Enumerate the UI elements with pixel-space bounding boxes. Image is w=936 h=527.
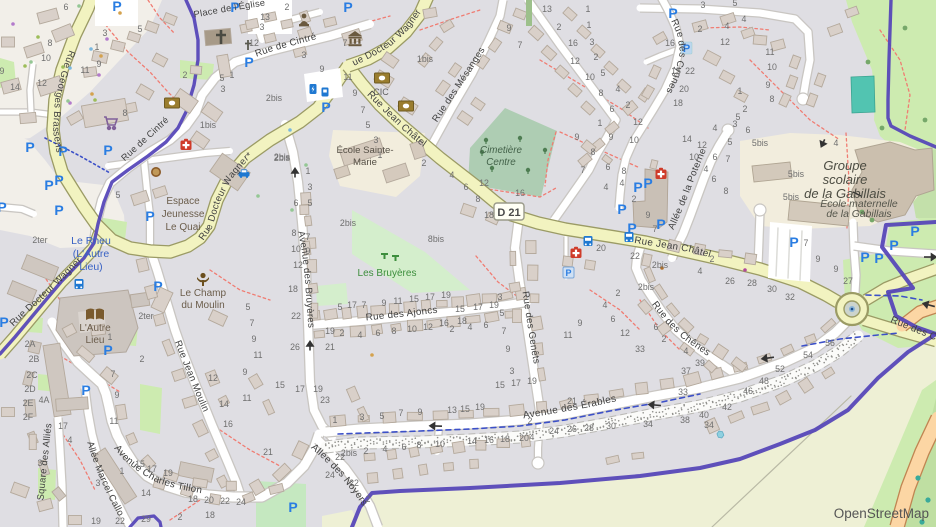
svg-text:8: 8 <box>48 38 53 48</box>
svg-text:6: 6 <box>464 182 469 192</box>
svg-text:P: P <box>633 179 642 195</box>
svg-text:37: 37 <box>681 366 691 376</box>
svg-text:15: 15 <box>671 66 681 76</box>
svg-text:6: 6 <box>746 125 751 135</box>
svg-text:39: 39 <box>695 358 705 368</box>
svg-text:3: 3 <box>510 366 515 376</box>
svg-text:P: P <box>103 342 112 358</box>
svg-text:3: 3 <box>308 182 313 192</box>
svg-text:4: 4 <box>603 300 608 310</box>
svg-text:du Moulin: du Moulin <box>181 300 224 311</box>
svg-text:9: 9 <box>382 298 387 308</box>
svg-text:7: 7 <box>111 369 116 379</box>
svg-text:11: 11 <box>563 330 572 340</box>
svg-text:P: P <box>565 268 571 278</box>
svg-text:3: 3 <box>302 50 307 60</box>
svg-text:4: 4 <box>684 346 689 356</box>
svg-text:17: 17 <box>511 378 521 388</box>
svg-text:P: P <box>0 314 9 330</box>
svg-text:8bis: 8bis <box>428 234 445 244</box>
svg-text:7: 7 <box>399 408 404 418</box>
svg-text:1bis: 1bis <box>417 54 434 64</box>
svg-text:26: 26 <box>725 276 735 286</box>
svg-text:15: 15 <box>455 304 465 314</box>
svg-text:12: 12 <box>479 178 489 188</box>
svg-text:3: 3 <box>701 0 706 10</box>
svg-text:14: 14 <box>10 82 20 92</box>
svg-text:2E: 2E <box>23 398 34 408</box>
svg-text:20: 20 <box>596 243 606 253</box>
svg-text:2: 2 <box>183 70 188 80</box>
svg-text:2bis: 2bis <box>340 218 357 228</box>
svg-text:5: 5 <box>733 0 738 8</box>
svg-text:Le Rheu: Le Rheu <box>71 235 111 247</box>
svg-text:17: 17 <box>473 302 483 312</box>
svg-text:29: 29 <box>141 514 151 524</box>
svg-text:4: 4 <box>704 164 709 174</box>
svg-text:28: 28 <box>584 423 594 433</box>
svg-text:20: 20 <box>679 84 689 94</box>
svg-text:1: 1 <box>738 86 743 96</box>
svg-text:10: 10 <box>41 53 51 63</box>
svg-text:7: 7 <box>726 154 731 164</box>
svg-text:6: 6 <box>484 320 489 330</box>
svg-text:18: 18 <box>188 494 198 504</box>
svg-text:12: 12 <box>570 56 580 66</box>
svg-text:9: 9 <box>243 367 248 377</box>
svg-text:3: 3 <box>103 28 108 38</box>
svg-text:12: 12 <box>293 260 303 270</box>
svg-text:22: 22 <box>291 311 301 321</box>
svg-text:2: 2 <box>528 416 533 426</box>
svg-text:10: 10 <box>629 135 639 145</box>
svg-text:19: 19 <box>91 516 101 526</box>
svg-text:26: 26 <box>290 342 300 352</box>
svg-text:5: 5 <box>500 308 505 318</box>
svg-text:22: 22 <box>685 66 695 76</box>
svg-text:de la Gabillais: de la Gabillais <box>826 209 891 220</box>
svg-text:5: 5 <box>338 302 343 312</box>
svg-text:11: 11 <box>253 350 262 360</box>
svg-text:17: 17 <box>347 300 357 310</box>
svg-text:26: 26 <box>567 424 577 434</box>
svg-text:5: 5 <box>366 120 371 130</box>
svg-text:14: 14 <box>467 436 477 446</box>
svg-text:P: P <box>288 499 297 515</box>
svg-text:3: 3 <box>260 22 265 32</box>
svg-text:12: 12 <box>633 117 643 127</box>
svg-text:16: 16 <box>484 435 494 445</box>
svg-text:7: 7 <box>518 40 523 50</box>
svg-text:8: 8 <box>599 88 604 98</box>
svg-text:5: 5 <box>736 112 741 122</box>
svg-text:Espace: Espace <box>166 196 200 207</box>
svg-text:21: 21 <box>325 342 335 352</box>
svg-text:12: 12 <box>620 328 630 338</box>
svg-text:10: 10 <box>585 72 595 82</box>
svg-text:40: 40 <box>699 410 709 420</box>
svg-text:13: 13 <box>447 405 457 415</box>
svg-text:21: 21 <box>567 396 577 406</box>
svg-text:P: P <box>44 177 53 193</box>
svg-text:2: 2 <box>285 2 290 12</box>
svg-text:28: 28 <box>747 278 757 288</box>
svg-text:P: P <box>244 54 253 70</box>
svg-text:15: 15 <box>409 294 419 304</box>
svg-text:4: 4 <box>834 138 839 148</box>
svg-text:2: 2 <box>594 52 599 62</box>
svg-text:19: 19 <box>527 376 537 386</box>
svg-text:P: P <box>343 0 352 15</box>
svg-text:10: 10 <box>767 62 777 72</box>
svg-text:16: 16 <box>439 318 449 328</box>
svg-text:4: 4 <box>468 322 473 332</box>
svg-text:Centre: Centre <box>486 157 516 168</box>
svg-text:12: 12 <box>37 78 47 88</box>
svg-text:2B: 2B <box>29 354 40 364</box>
svg-text:10: 10 <box>689 152 699 162</box>
svg-text:7: 7 <box>804 238 809 248</box>
svg-text:8: 8 <box>476 194 481 204</box>
svg-text:2: 2 <box>450 324 455 334</box>
svg-text:5: 5 <box>138 24 143 34</box>
svg-text:5bis: 5bis <box>752 138 769 148</box>
svg-text:P: P <box>910 223 919 239</box>
svg-text:6: 6 <box>610 104 615 114</box>
svg-text:14: 14 <box>141 488 151 498</box>
svg-text:9: 9 <box>575 132 580 142</box>
svg-text:P: P <box>860 249 869 265</box>
svg-text:17: 17 <box>295 384 305 394</box>
svg-text:6: 6 <box>64 2 69 12</box>
svg-text:2: 2 <box>364 446 369 456</box>
svg-text:7: 7 <box>306 232 311 242</box>
svg-text:3: 3 <box>374 135 379 145</box>
svg-text:6: 6 <box>376 328 381 338</box>
svg-text:OpenStreetMap: OpenStreetMap <box>834 506 929 521</box>
svg-text:1: 1 <box>306 166 311 176</box>
svg-text:1: 1 <box>586 4 591 14</box>
svg-text:1: 1 <box>230 70 235 80</box>
svg-text:4: 4 <box>698 266 703 276</box>
svg-text:22: 22 <box>349 478 359 488</box>
svg-text:2D: 2D <box>24 384 35 394</box>
svg-text:6: 6 <box>712 174 717 184</box>
svg-text:32: 32 <box>785 292 795 302</box>
svg-text:P: P <box>25 139 34 155</box>
svg-text:4: 4 <box>383 444 388 454</box>
svg-text:4: 4 <box>620 178 625 188</box>
svg-text:L'Autre: L'Autre <box>79 323 111 334</box>
svg-text:4: 4 <box>358 330 363 340</box>
svg-text:9: 9 <box>609 132 614 142</box>
svg-text:1: 1 <box>108 332 113 342</box>
svg-text:P: P <box>889 237 898 253</box>
svg-text:2bis: 2bis <box>274 153 291 163</box>
svg-text:10: 10 <box>407 324 417 334</box>
svg-text:2: 2 <box>366 494 371 504</box>
svg-text:4: 4 <box>68 435 73 445</box>
svg-text:P: P <box>54 172 63 188</box>
svg-text:20: 20 <box>204 495 214 505</box>
svg-text:56: 56 <box>825 338 835 348</box>
svg-text:48: 48 <box>759 376 769 386</box>
svg-text:4: 4 <box>713 123 718 133</box>
svg-text:6: 6 <box>654 322 659 332</box>
svg-text:2: 2 <box>710 254 715 264</box>
svg-text:6: 6 <box>713 152 718 162</box>
svg-text:2bis: 2bis <box>266 93 283 103</box>
svg-text:12: 12 <box>720 37 730 47</box>
svg-text:12: 12 <box>208 373 218 383</box>
svg-text:11: 11 <box>242 393 251 403</box>
svg-text:7: 7 <box>250 318 255 328</box>
svg-text:2F: 2F <box>23 412 34 422</box>
svg-text:1: 1 <box>333 415 338 425</box>
svg-text:21: 21 <box>263 447 273 457</box>
svg-text:2: 2 <box>662 334 667 344</box>
svg-text:7: 7 <box>581 165 586 175</box>
svg-text:9: 9 <box>306 246 311 256</box>
svg-text:5bis: 5bis <box>783 192 800 202</box>
svg-text:15: 15 <box>460 404 470 414</box>
svg-text:15: 15 <box>495 380 505 390</box>
svg-text:3: 3 <box>498 292 503 302</box>
svg-text:2bis: 2bis <box>638 282 655 292</box>
svg-text:9: 9 <box>0 66 5 76</box>
svg-text:14: 14 <box>682 134 692 144</box>
svg-text:34: 34 <box>643 419 653 429</box>
svg-text:9: 9 <box>353 88 358 98</box>
svg-text:17: 17 <box>425 292 435 302</box>
svg-text:1: 1 <box>598 118 603 128</box>
svg-text:12: 12 <box>249 38 259 48</box>
svg-text:2C: 2C <box>26 370 38 380</box>
svg-text:4A: 4A <box>39 395 50 405</box>
svg-text:15: 15 <box>275 380 285 390</box>
svg-text:4: 4 <box>450 170 455 180</box>
svg-text:4: 4 <box>742 14 747 24</box>
svg-text:18: 18 <box>500 434 510 444</box>
svg-text:16: 16 <box>665 38 675 48</box>
svg-text:30: 30 <box>767 284 777 294</box>
svg-text:9: 9 <box>834 264 839 274</box>
svg-text:P: P <box>874 250 883 266</box>
svg-text:18: 18 <box>457 316 467 326</box>
svg-text:Cimetière: Cimetière <box>480 145 522 156</box>
svg-text:(L'Autre: (L'Autre <box>73 248 110 260</box>
svg-text:5: 5 <box>601 68 606 78</box>
svg-text:scolaire: scolaire <box>823 172 868 187</box>
svg-text:33: 33 <box>635 344 645 354</box>
svg-text:13: 13 <box>542 4 552 14</box>
svg-text:Marie: Marie <box>353 157 377 168</box>
svg-text:8: 8 <box>770 94 775 104</box>
svg-text:14: 14 <box>219 399 229 409</box>
svg-text:P: P <box>103 142 112 158</box>
svg-text:6: 6 <box>294 198 299 208</box>
svg-text:5: 5 <box>220 73 225 83</box>
svg-text:2: 2 <box>698 24 703 34</box>
svg-text:3: 3 <box>360 412 365 422</box>
svg-text:22: 22 <box>335 452 345 462</box>
svg-text:2bis: 2bis <box>652 260 669 270</box>
svg-text:6: 6 <box>606 162 611 172</box>
svg-text:2A: 2A <box>25 339 36 349</box>
svg-text:46: 46 <box>743 386 753 396</box>
svg-text:10: 10 <box>291 244 301 254</box>
svg-text:8: 8 <box>724 186 729 196</box>
svg-text:12: 12 <box>423 322 433 332</box>
svg-text:22: 22 <box>220 496 230 506</box>
svg-text:19: 19 <box>441 290 451 300</box>
svg-text:Groupe: Groupe <box>823 158 866 173</box>
svg-text:23: 23 <box>320 395 330 405</box>
svg-text:15: 15 <box>135 459 145 469</box>
svg-text:34: 34 <box>704 420 714 430</box>
svg-text:19: 19 <box>163 468 173 478</box>
svg-text:42: 42 <box>722 402 732 412</box>
svg-text:54: 54 <box>803 350 813 360</box>
svg-text:18: 18 <box>205 510 215 520</box>
svg-text:17: 17 <box>147 464 157 474</box>
svg-text:2: 2 <box>422 158 427 168</box>
svg-text:4: 4 <box>616 84 621 94</box>
svg-text:9: 9 <box>320 64 325 74</box>
svg-text:33: 33 <box>678 387 688 397</box>
svg-text:9: 9 <box>418 407 423 417</box>
svg-text:4: 4 <box>530 432 535 442</box>
svg-text:9: 9 <box>816 254 821 264</box>
svg-text:1: 1 <box>95 42 100 52</box>
svg-text:P: P <box>789 234 798 250</box>
svg-text:4: 4 <box>604 182 609 192</box>
svg-text:52: 52 <box>775 364 785 374</box>
svg-text:16: 16 <box>223 419 233 429</box>
svg-text:8: 8 <box>292 228 297 238</box>
svg-text:30: 30 <box>606 421 616 431</box>
svg-text:P: P <box>54 202 63 218</box>
svg-text:5: 5 <box>308 198 313 208</box>
svg-text:16: 16 <box>568 38 578 48</box>
svg-text:5: 5 <box>380 411 385 421</box>
svg-text:P: P <box>656 216 665 232</box>
svg-text:12: 12 <box>697 140 707 150</box>
svg-text:9: 9 <box>507 23 512 33</box>
svg-text:D 21: D 21 <box>497 207 520 219</box>
svg-text:2ter: 2ter <box>32 235 47 245</box>
svg-text:11: 11 <box>393 296 402 306</box>
svg-text:19: 19 <box>475 402 485 412</box>
svg-text:5bis: 5bis <box>788 169 805 179</box>
svg-text:Lieu): Lieu) <box>79 261 102 273</box>
svg-text:2: 2 <box>626 100 631 110</box>
svg-text:3: 3 <box>590 37 595 47</box>
svg-text:22: 22 <box>115 516 125 526</box>
svg-text:7: 7 <box>653 224 658 234</box>
svg-text:27: 27 <box>843 276 853 286</box>
svg-text:18: 18 <box>673 98 683 108</box>
svg-text:Le Champ: Le Champ <box>180 288 227 299</box>
svg-text:1: 1 <box>587 20 592 30</box>
svg-text:16: 16 <box>515 188 525 198</box>
svg-text:24: 24 <box>549 426 559 436</box>
svg-text:5: 5 <box>246 302 251 312</box>
svg-text:17: 17 <box>58 421 68 431</box>
svg-text:9: 9 <box>115 390 120 400</box>
svg-text:2: 2 <box>557 22 562 32</box>
svg-text:11: 11 <box>109 416 118 426</box>
svg-text:5: 5 <box>116 190 121 200</box>
svg-text:10: 10 <box>435 439 445 449</box>
svg-text:8: 8 <box>123 108 128 118</box>
svg-text:11: 11 <box>80 65 89 75</box>
svg-text:7: 7 <box>362 300 367 310</box>
svg-text:7: 7 <box>361 105 366 115</box>
svg-text:8: 8 <box>622 166 627 176</box>
svg-text:P: P <box>0 199 7 215</box>
svg-text:8: 8 <box>392 326 397 336</box>
svg-text:2: 2 <box>616 288 621 298</box>
svg-text:P: P <box>81 382 90 398</box>
svg-text:P: P <box>321 99 330 115</box>
svg-text:19: 19 <box>325 326 335 336</box>
svg-text:7: 7 <box>343 38 348 48</box>
svg-text:Lieu: Lieu <box>86 335 105 346</box>
svg-text:1: 1 <box>120 466 125 476</box>
svg-text:P: P <box>643 175 652 191</box>
svg-text:8: 8 <box>417 440 422 450</box>
svg-text:2: 2 <box>140 354 145 364</box>
svg-text:18: 18 <box>484 210 494 220</box>
svg-text:8: 8 <box>591 147 596 157</box>
svg-text:1: 1 <box>378 150 383 160</box>
svg-text:9: 9 <box>506 344 511 354</box>
svg-text:18: 18 <box>288 284 298 294</box>
svg-text:5: 5 <box>728 137 733 147</box>
svg-text:9: 9 <box>97 59 102 69</box>
svg-text:9: 9 <box>766 80 771 90</box>
svg-text:6: 6 <box>402 442 407 452</box>
svg-text:P: P <box>145 208 154 224</box>
svg-text:Le Quai: Le Quai <box>165 222 200 233</box>
svg-text:11: 11 <box>343 72 352 82</box>
svg-text:19: 19 <box>313 384 323 394</box>
svg-text:20: 20 <box>519 433 529 443</box>
svg-text:4: 4 <box>725 21 730 31</box>
svg-text:38: 38 <box>680 415 690 425</box>
svg-text:9: 9 <box>252 334 257 344</box>
svg-text:2: 2 <box>178 512 183 522</box>
svg-text:2ter: 2ter <box>138 311 153 321</box>
svg-text:Jeunesse: Jeunesse <box>162 209 205 220</box>
svg-text:P: P <box>153 278 162 294</box>
svg-text:École Sainte-: École Sainte- <box>336 145 393 156</box>
svg-text:24: 24 <box>236 497 246 507</box>
svg-text:11: 11 <box>765 47 774 57</box>
svg-text:7: 7 <box>502 326 507 336</box>
svg-text:13: 13 <box>260 12 270 22</box>
svg-text:3: 3 <box>221 84 226 94</box>
svg-text:2: 2 <box>340 328 345 338</box>
svg-text:P: P <box>617 201 626 217</box>
svg-text:22: 22 <box>630 251 640 261</box>
svg-text:24: 24 <box>325 470 335 480</box>
svg-text:1bis: 1bis <box>200 120 217 130</box>
svg-text:2: 2 <box>632 194 637 204</box>
svg-text:3: 3 <box>38 458 43 468</box>
svg-text:9: 9 <box>646 210 651 220</box>
